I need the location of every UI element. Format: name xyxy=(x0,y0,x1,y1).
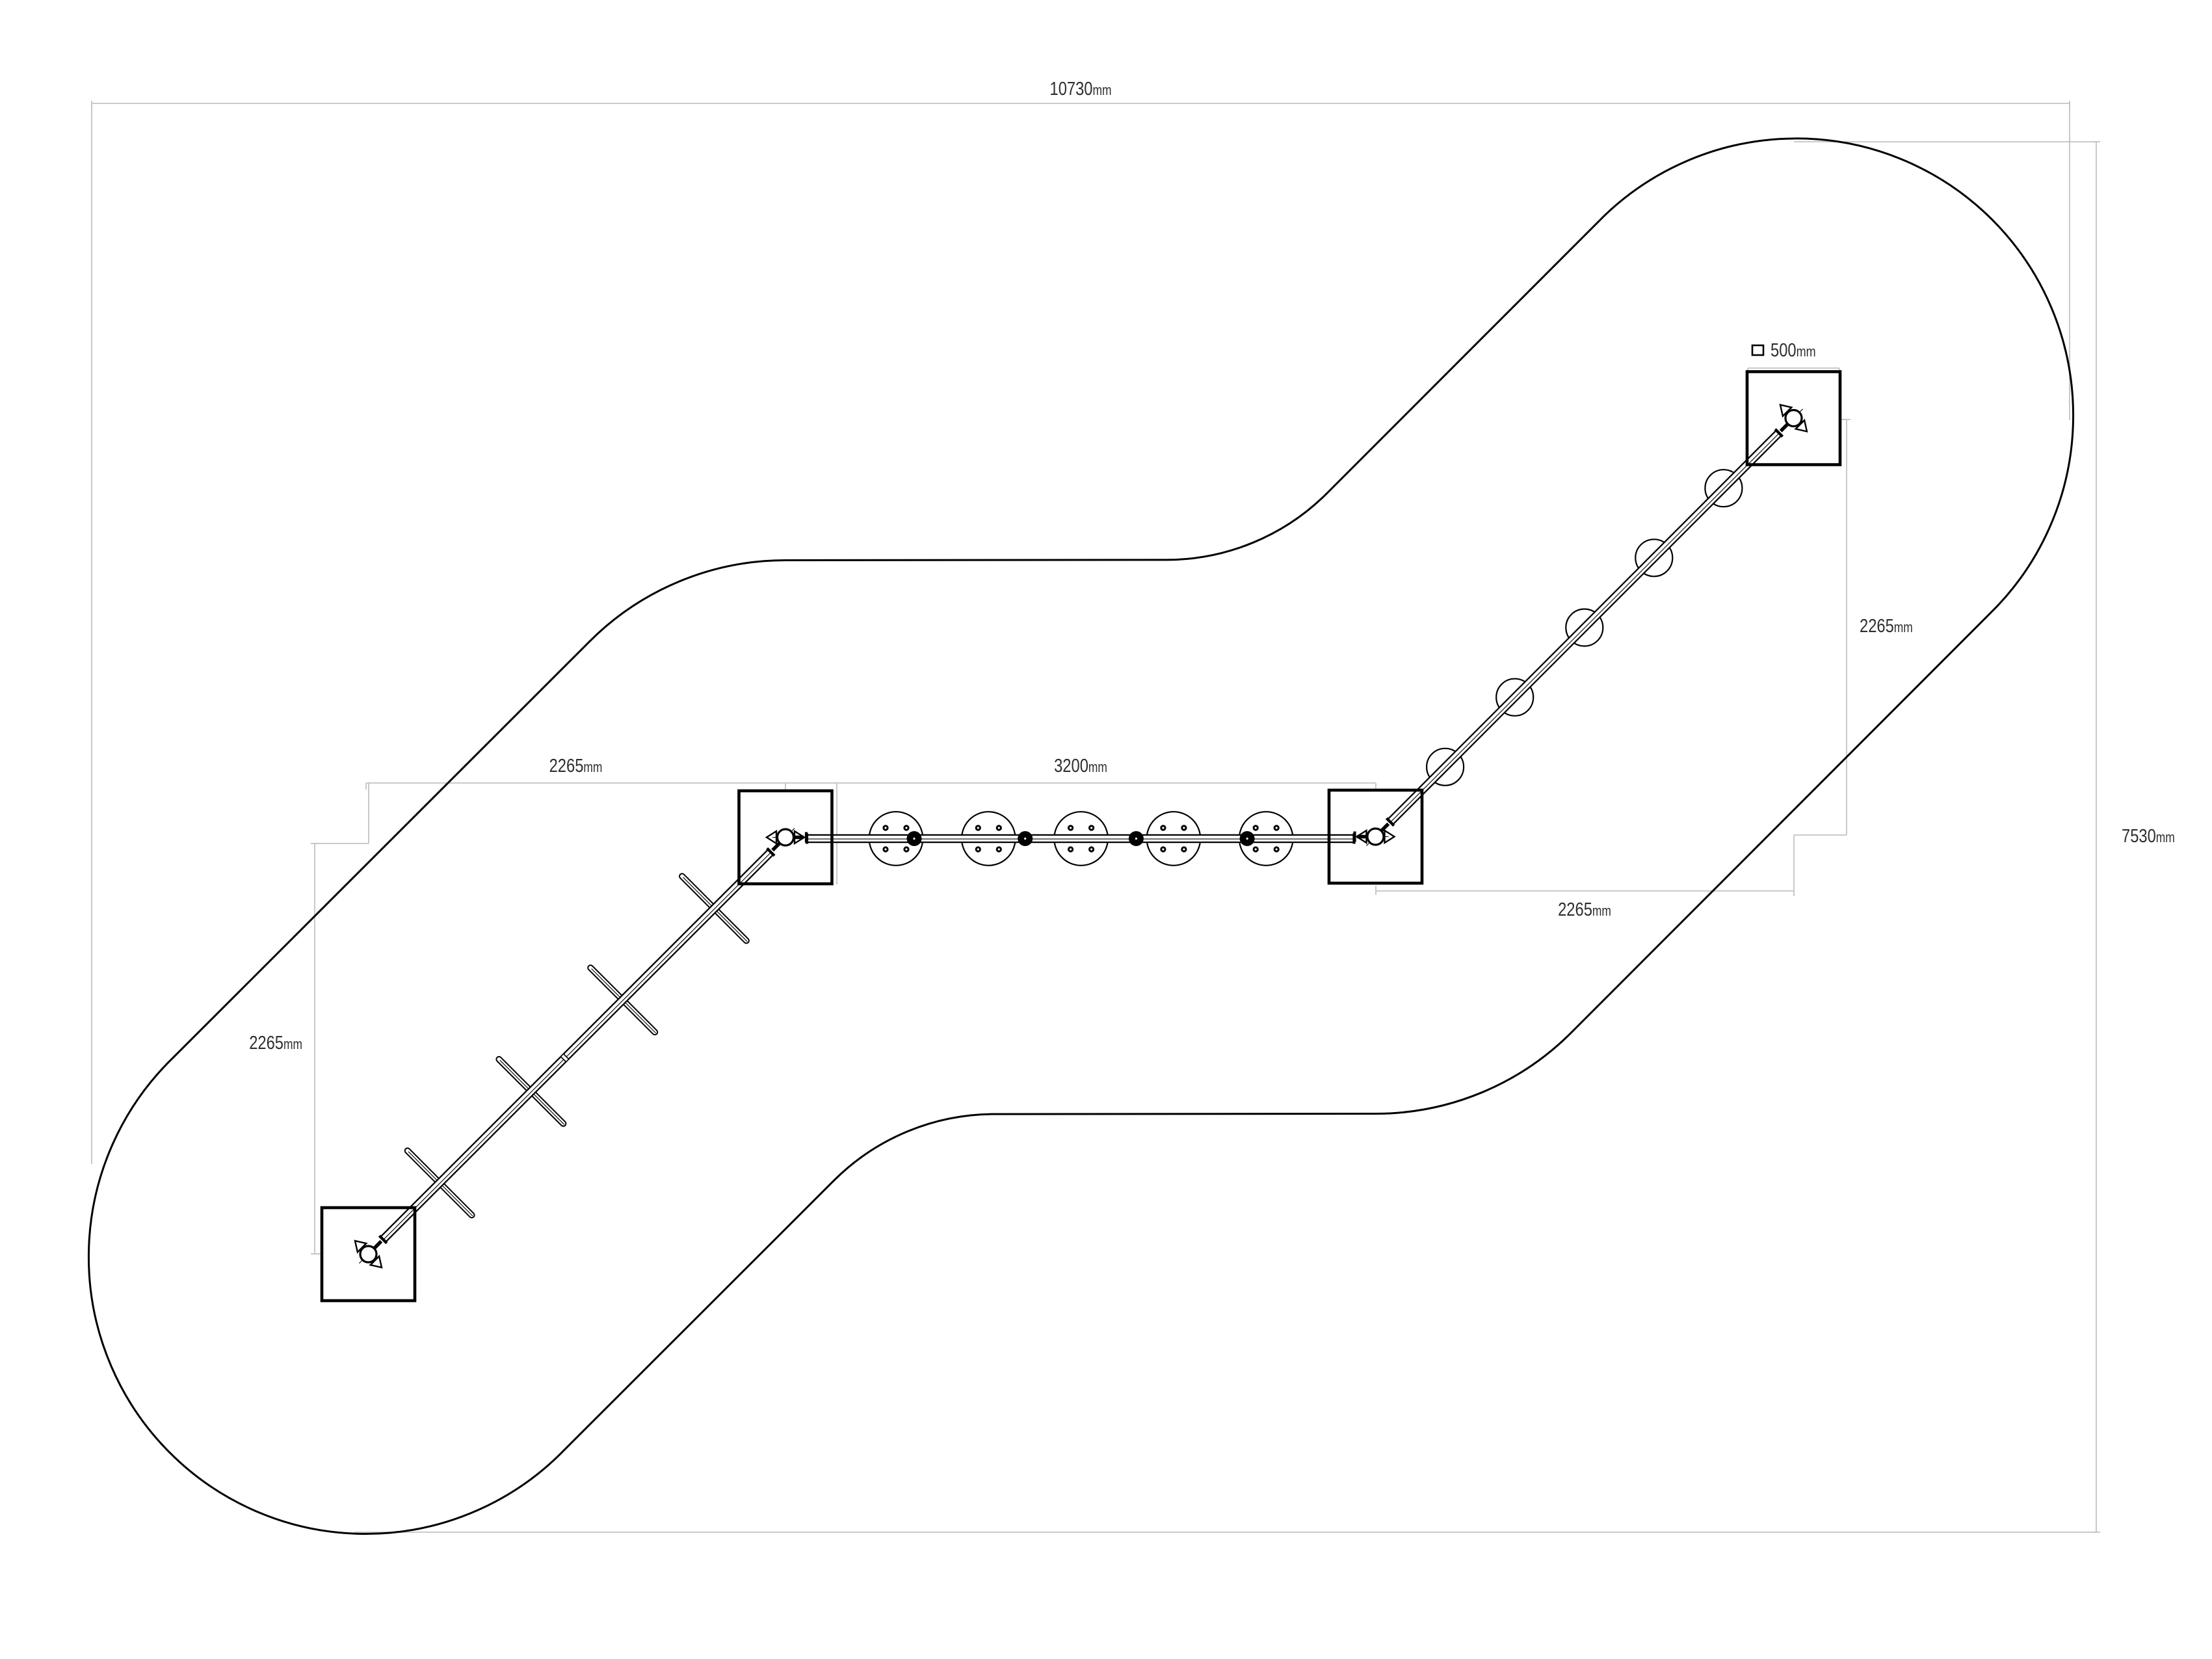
svg-text:10730mm: 10730mm xyxy=(1050,79,1112,100)
svg-text:3200mm: 3200mm xyxy=(1054,756,1107,776)
svg-text:2265mm: 2265mm xyxy=(549,756,603,776)
svg-text:2265mm: 2265mm xyxy=(1558,899,1611,920)
svg-text:2265mm: 2265mm xyxy=(1860,616,1913,637)
svg-text:500mm: 500mm xyxy=(1771,340,1816,361)
svg-text:2265mm: 2265mm xyxy=(249,1033,302,1054)
svg-text:7530mm: 7530mm xyxy=(2122,826,2175,847)
